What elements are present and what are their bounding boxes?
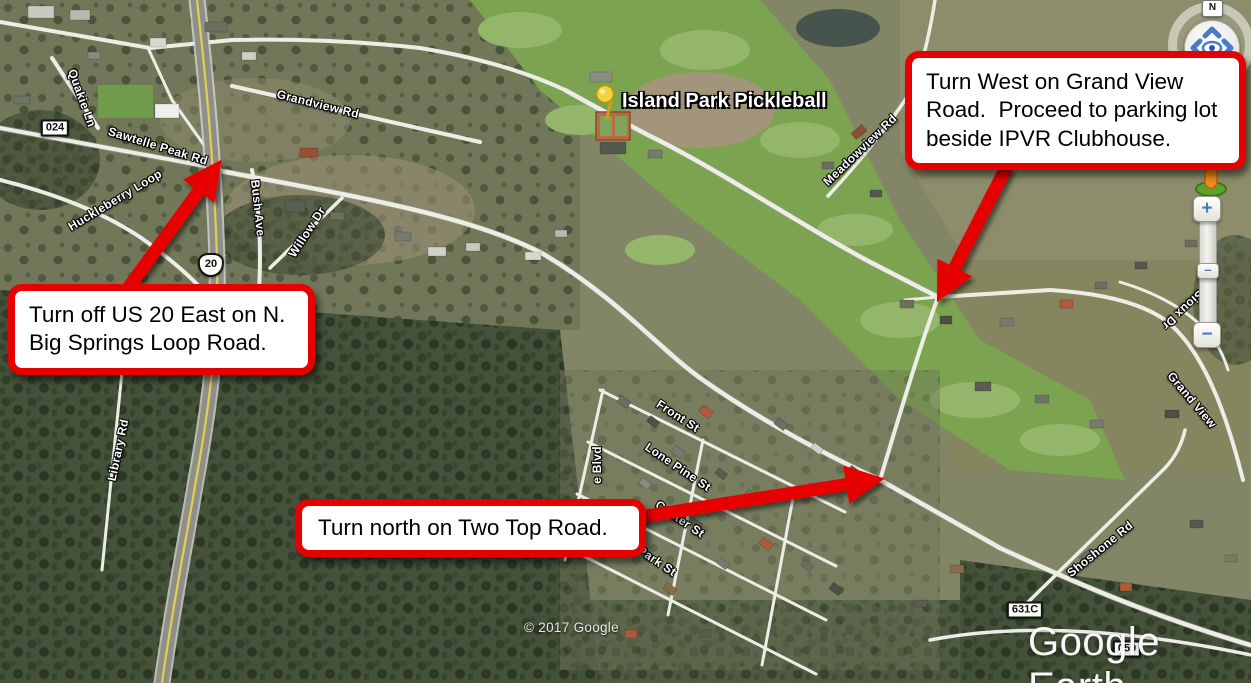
google-earth-logo: Google Earth (1028, 620, 1251, 683)
place-label-island-park-pickleball[interactable]: Island Park Pickleball (622, 90, 827, 113)
callout-two-top: Turn north on Two Top Road. (295, 499, 646, 557)
compass-north-button[interactable]: N (1202, 0, 1223, 17)
look-up-arrow-icon (1205, 29, 1219, 36)
zoom-slider-handle[interactable]: – (1197, 263, 1219, 279)
callout-us20: Turn off US 20 East on N. Big Springs Lo… (8, 284, 315, 375)
google-earth-window: Quakie Ln Sawtelle Peak Rd Huckleberry L… (0, 0, 1251, 683)
zoom-in-button[interactable]: + (1193, 196, 1221, 222)
callout-grand-view: Turn West on Grand View Road. Proceed to… (905, 51, 1246, 170)
zoom-out-button[interactable]: − (1193, 322, 1221, 348)
map-attribution: © 2017 Google (524, 620, 619, 635)
pickleball-pushpin-icon[interactable] (594, 84, 624, 126)
